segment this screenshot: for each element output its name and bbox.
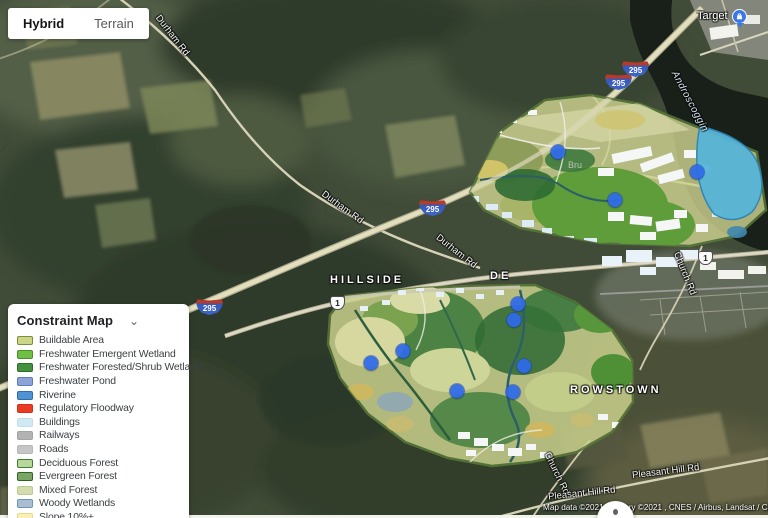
legend-item: Freshwater Emergent Wetland [17,348,183,362]
legend-items: Buildable Area Freshwater Emergent Wetla… [17,334,183,518]
legend-item-label: Riverine [39,390,76,401]
legend-swatch [17,499,33,508]
map-marker[interactable] [507,313,521,327]
legend-item: Riverine [17,388,183,402]
legend-item-label: Freshwater Emergent Wetland [39,349,176,360]
chevron-down-icon[interactable]: ⌄ [129,316,139,326]
map-marker[interactable] [396,344,410,358]
map-marker[interactable] [551,145,565,159]
legend-item-label: Freshwater Pond [39,376,116,387]
legend-swatch [17,486,33,495]
legend-item: Evergreen Forest [17,470,183,484]
legend-item-label: Buildable Area [39,335,104,346]
legend-item: Buildable Area [17,334,183,348]
legend-swatch [17,431,33,440]
constraint-map-legend: Constraint Map ⌄ Buildable Area Freshwat… [8,304,189,518]
map-marker[interactable] [364,356,378,370]
hybrid-button[interactable]: Hybrid [8,8,79,39]
map-marker[interactable] [450,384,464,398]
map-marker[interactable] [511,297,525,311]
legend-item: Woody Wetlands [17,497,183,511]
legend-item-label: Deciduous Forest [39,458,118,469]
shopping-bag-icon[interactable] [732,9,747,24]
legend-item-label: Slope 10%+ [39,512,94,518]
legend-swatch [17,459,33,468]
legend-swatch [17,377,33,386]
legend-swatch [17,513,33,518]
legend-swatch [17,391,33,400]
map-marker[interactable] [506,385,520,399]
legend-swatch [17,418,33,427]
legend-swatch [17,445,33,454]
map-attribution: Map data ©2021 Imagery ©2021 , CNES / Ai… [543,503,768,512]
legend-item: Regulatory Floodway [17,402,183,416]
legend-swatch [17,350,33,359]
legend-header: Constraint Map ⌄ [17,313,183,328]
legend-item: Railways [17,429,183,443]
legend-title: Constraint Map [17,313,113,328]
poi-target: Target [697,9,747,24]
poi-label: Target [697,10,728,22]
legend-item-label: Evergreen Forest [39,471,117,482]
legend-swatch [17,404,33,413]
legend-item: Freshwater Forested/Shrub Wetland [17,361,183,375]
legend-swatch [17,363,33,372]
map-marker[interactable] [608,193,622,207]
legend-item: Buildings [17,416,183,430]
legend-item-label: Roads [39,444,68,455]
legend-item-label: Freshwater Forested/Shrub Wetland [39,362,201,373]
map-marker[interactable] [690,165,704,179]
legend-item-label: Railways [39,430,79,441]
legend-item-label: Buildings [39,417,80,428]
legend-item: Slope 10%+ [17,511,183,518]
terrain-button[interactable]: Terrain [79,8,149,39]
map-viewport: 295295295295 11 HILLSIDEDEROWSTOWNDurham… [0,0,768,518]
legend-item: Freshwater Pond [17,375,183,389]
legend-item-label: Regulatory Floodway [39,403,134,414]
map-marker[interactable] [517,359,531,373]
legend-item: Deciduous Forest [17,456,183,470]
legend-swatch [17,336,33,345]
legend-swatch [17,472,33,481]
legend-item-label: Mixed Forest [39,485,97,496]
legend-item: Roads [17,443,183,457]
map-type-control: Hybrid Terrain [8,8,149,39]
legend-item: Mixed Forest [17,484,183,498]
legend-item-label: Woody Wetlands [39,498,115,509]
